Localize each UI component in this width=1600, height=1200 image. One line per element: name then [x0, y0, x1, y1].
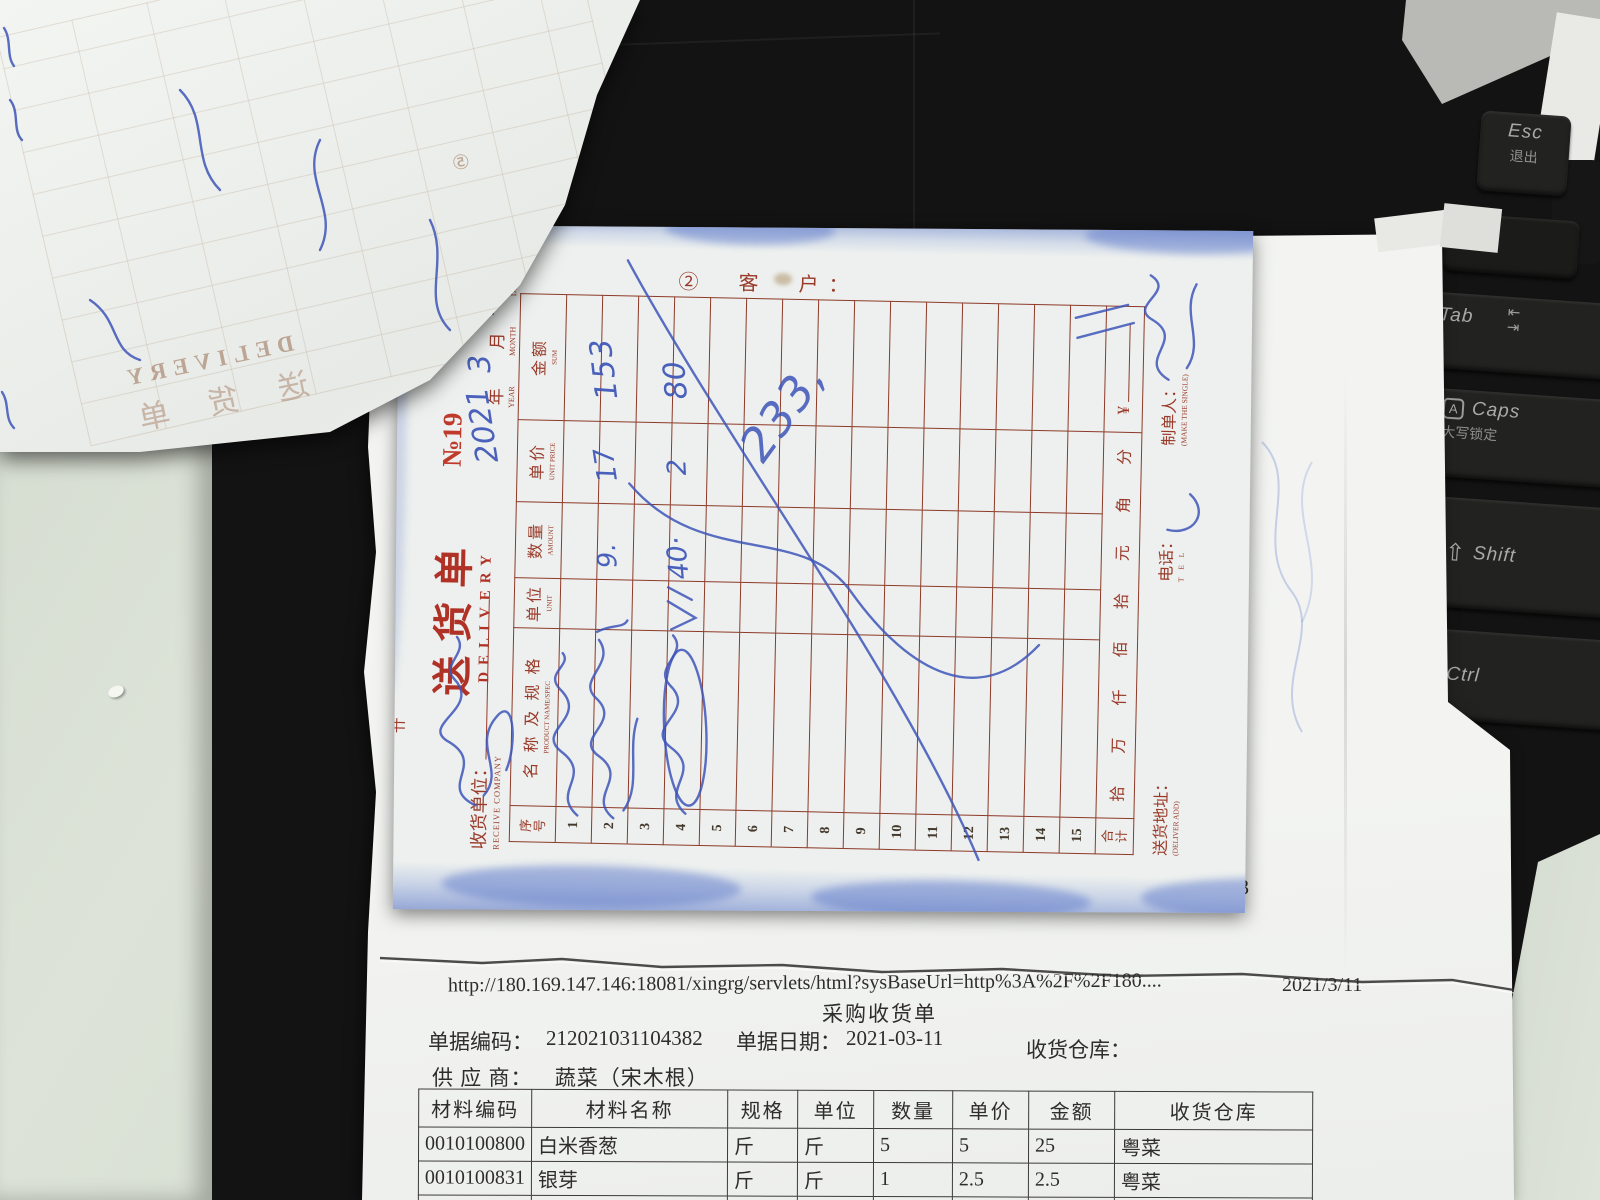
flipped-page: DELIVERY 送 货 单 ⑤: [0, 0, 660, 460]
flipped-page-wrap: DELIVERY 送 货 单 ⑤: [0, 0, 700, 500]
photo-of-desk-with-delivery-notes: Esc 退出 Tab ⇤⇥ A Caps 大写锁定 ⇧ Shift Ctrl: [0, 0, 1600, 1200]
stub-mark: 卄: [385, 717, 409, 734]
dye-blob: [1141, 875, 1432, 927]
ghost-scribbles: [0, 0, 660, 460]
